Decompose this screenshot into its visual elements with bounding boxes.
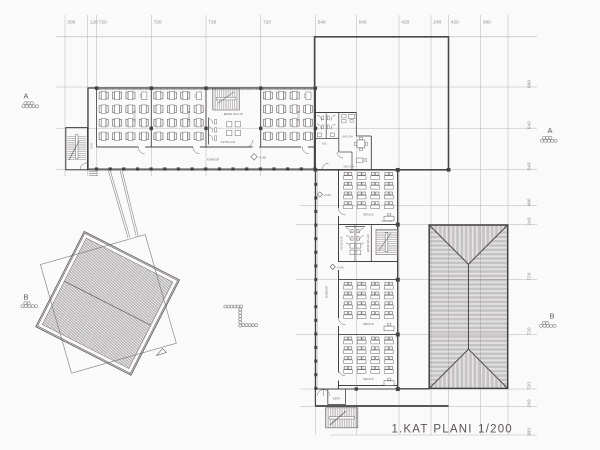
svg-text:KIZ WC+LAV: KIZ WC+LAV [340,236,343,250]
svg-text:720: 720 [527,272,533,280]
svg-text:120: 120 [90,19,98,25]
svg-text:480: 480 [527,198,533,206]
svg-text:540: 540 [318,19,326,25]
svg-text:DEPO: DEPO [333,397,340,400]
svg-text:KORIDOR: KORIDOR [207,157,219,161]
svg-text:360: 360 [483,19,491,25]
svg-text:+3.60: +3.60 [337,266,345,270]
svg-text:720: 720 [263,19,271,25]
svg-text:300: 300 [527,428,533,436]
svg-text:720: 720 [208,19,216,25]
svg-text:ERKEK WC+LAV: ERKEK WC+LAV [367,234,370,252]
svg-text:KOL: KOL [322,143,327,145]
svg-text:+3.60: +3.60 [324,193,332,197]
svg-text:MUD.ODA: MUD.ODA [381,220,392,223]
svg-text:MUD.ODA: MUD.ODA [344,166,355,169]
svg-text:DERSLIK: DERSLIK [363,377,374,381]
svg-text:GIRIS: GIRIS [91,142,94,149]
svg-text:DERSLIK: DERSLIK [363,212,374,216]
svg-text:720: 720 [154,19,162,25]
svg-text:300: 300 [67,19,75,25]
svg-text:ERKEK WC+LAV: ERKEK WC+LAV [224,113,244,116]
svg-text:BUR.ODA: BUR.ODA [342,135,353,138]
svg-text:240: 240 [527,399,533,407]
svg-text:240: 240 [433,19,441,25]
svg-text:KORIDOR: KORIDOR [324,286,328,298]
svg-text:+3.60: +3.60 [259,155,267,159]
svg-text:1/200: 1/200 [478,424,513,436]
svg-text:DERSLIK: DERSLIK [363,322,374,326]
svg-text:540: 540 [527,121,533,129]
svg-text:660: 660 [527,80,533,88]
svg-text:DERSLIK: DERSLIK [297,110,301,121]
svg-text:KIZ WC+LAV: KIZ WC+LAV [221,141,236,144]
svg-text:B: B [23,293,28,302]
svg-text:A: A [23,92,28,101]
svg-text:420: 420 [451,19,459,25]
svg-text:540: 540 [527,162,533,170]
svg-text:720: 720 [527,382,533,390]
svg-text:240: 240 [527,217,533,225]
svg-text:DERSLIK: DERSLIK [133,110,137,121]
svg-text:DERSLIK: DERSLIK [187,110,191,121]
svg-text:720: 720 [527,327,533,335]
svg-text:720: 720 [99,19,107,25]
svg-text:A: A [547,126,552,135]
svg-text:PLANI: PLANI [433,424,472,436]
svg-text:540: 540 [359,19,367,25]
svg-text:B: B [549,312,554,321]
svg-text:1.KAT: 1.KAT [391,424,428,436]
svg-text:420: 420 [401,19,409,25]
